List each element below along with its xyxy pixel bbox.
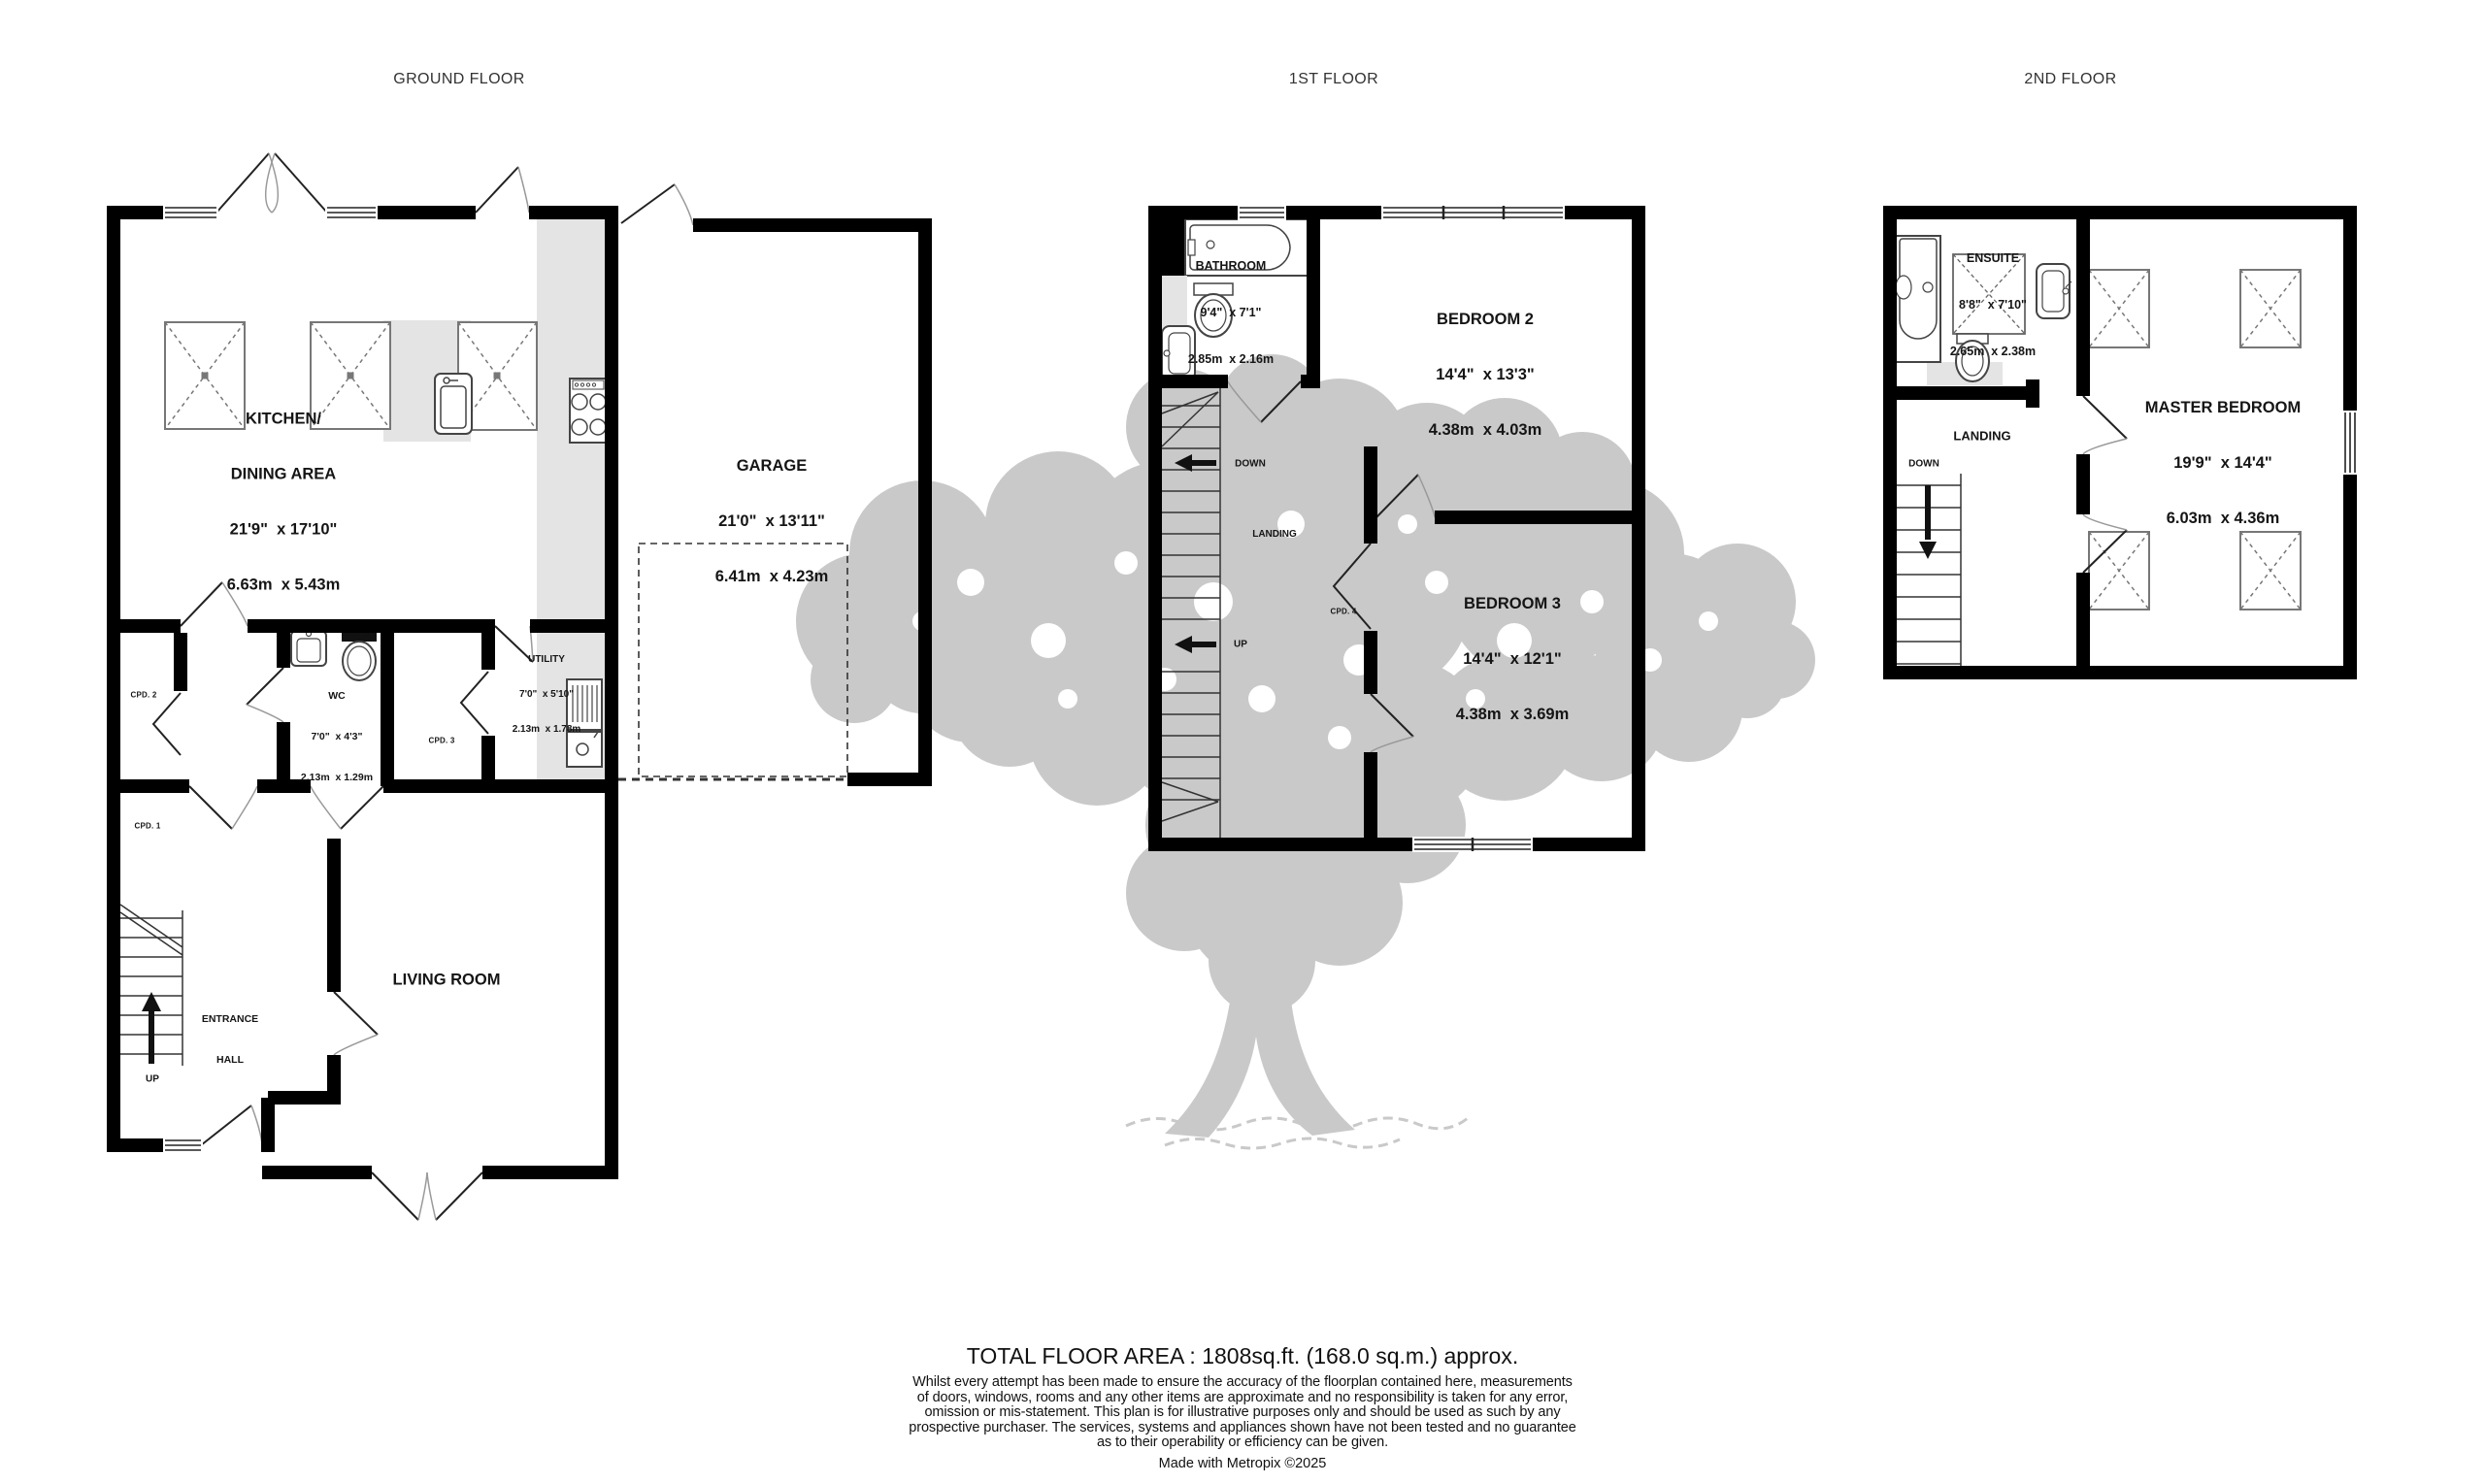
bedroom2-label: BEDROOM 2 14'4" x 13'3" 4.38m x 4.03m xyxy=(1429,274,1542,458)
ensuite-sink-icon xyxy=(2037,264,2071,318)
total-floor-area: TOTAL FLOOR AREA : 1808sq.ft. (168.0 sq.… xyxy=(967,1343,1518,1369)
landing-label-second: LANDING xyxy=(1953,429,2010,444)
wc-sink-icon xyxy=(291,631,326,666)
up-label-first: UP xyxy=(1234,640,1247,650)
cpd3-label: CPD. 3 xyxy=(429,737,455,745)
floorplan-page: GROUND FLOOR 1ST FLOOR 2ND FLOOR KITCHEN… xyxy=(0,0,2485,1484)
entrance-hall-label: ENTRANCE HALL xyxy=(202,985,258,1080)
hob-icon xyxy=(570,379,607,443)
garage-label: GARAGE 21'0" x 13'11" 6.41m x 4.23m xyxy=(715,420,829,605)
tree-watermark xyxy=(796,354,1815,1148)
ensuite-bath-icon xyxy=(1894,236,1940,362)
master-bedroom-label: MASTER BEDROOM 19'9" x 14'4" 6.03m x 4.3… xyxy=(2145,362,2301,546)
tree-trunk xyxy=(1165,980,1355,1138)
living-room-label: LIVING ROOM xyxy=(393,972,501,990)
bathroom-label: BATHROOM 9'4" x 7'1" 2.85m x 2.16m xyxy=(1188,227,1274,382)
utility-label: UTILITY 7'0" x 5'10" 2.13m x 1.78m xyxy=(513,631,581,747)
ensuite-label: ENSUITE 8'8" x 7'10" 2.65m x 2.38m xyxy=(1950,219,2036,375)
second-floor-title: 2ND FLOOR xyxy=(2024,71,2116,88)
stairs-ground-icon xyxy=(120,905,182,1066)
landing-label-first: LANDING xyxy=(1252,529,1297,541)
kitchen-label: KITCHEN/ DINING AREA 21'9" x 17'10" 6.63… xyxy=(227,374,341,613)
cpd2-label: CPD. 2 xyxy=(131,691,157,700)
skylight-icon xyxy=(2240,270,2301,347)
up-label-ground: UP xyxy=(146,1074,159,1085)
skylight-icon xyxy=(2089,532,2149,610)
cpd4-label: CPD. 4 xyxy=(1331,608,1357,616)
ground-floor-title: GROUND FLOOR xyxy=(393,71,524,88)
disclaimer: Whilst every attempt has been made to en… xyxy=(909,1375,1575,1451)
kitchen-sink-icon xyxy=(435,374,472,434)
down-label-first: DOWN xyxy=(1235,459,1266,470)
wc-label: WC 7'0" x 4'3" 2.13m x 1.29m xyxy=(301,662,373,798)
skylight-icon xyxy=(2089,270,2149,347)
cpd1-label: CPD. 1 xyxy=(135,822,161,831)
down-label-second: DOWN xyxy=(1908,459,1939,470)
first-floor-title: 1ST FLOOR xyxy=(1289,71,1378,88)
bedroom3-label: BEDROOM 3 14'4" x 12'1" 4.38m x 3.69m xyxy=(1456,558,1570,742)
stairs-second-icon xyxy=(1890,474,1961,670)
metropix-credit: Made with Metropix ©2025 xyxy=(1159,1456,1327,1471)
